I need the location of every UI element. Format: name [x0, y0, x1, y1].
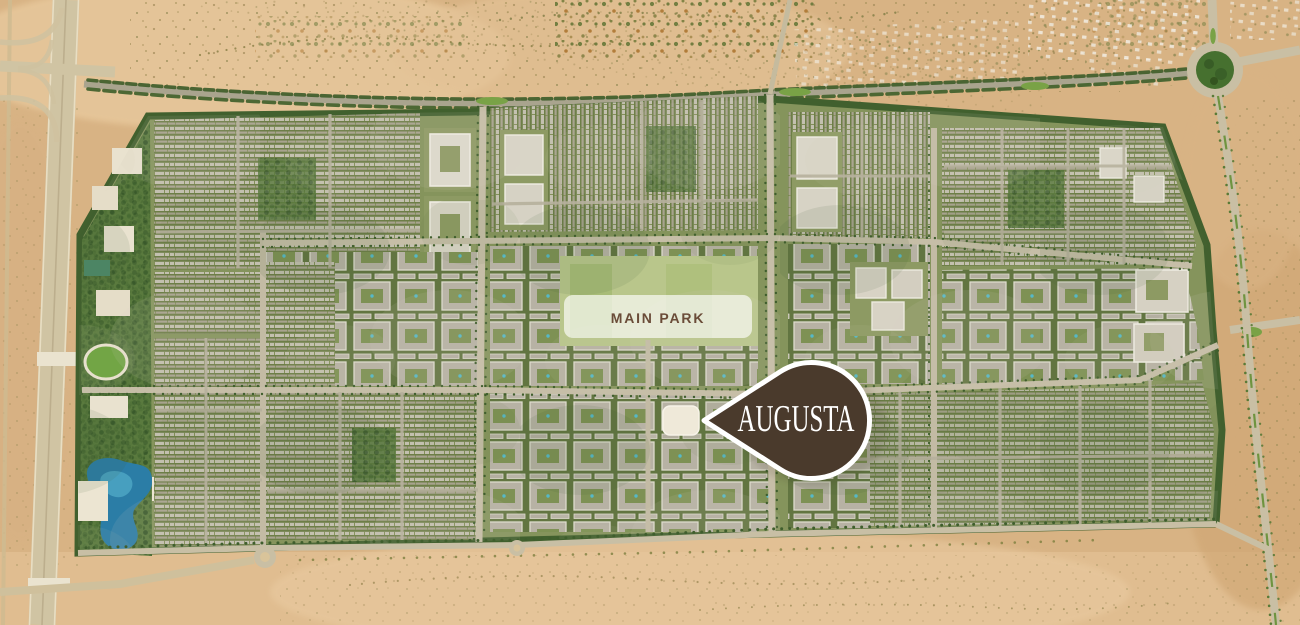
svg-text:AUGUSTA: AUGUSTA [738, 398, 855, 440]
svg-text:MAIN PARK: MAIN PARK [611, 310, 706, 326]
